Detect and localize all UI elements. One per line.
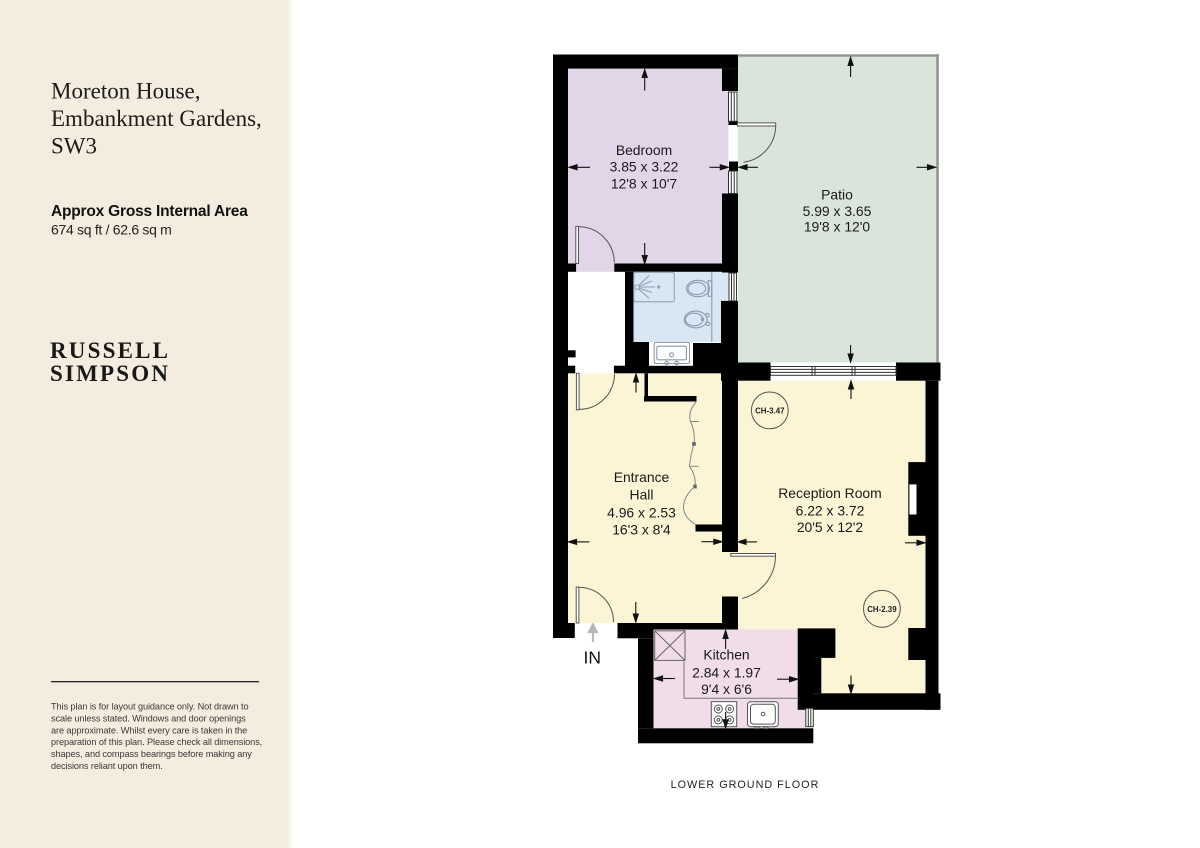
svg-text:decisions reliant upon them.: decisions reliant upon them. xyxy=(51,761,163,771)
svg-text:CH-3.47: CH-3.47 xyxy=(755,406,785,415)
svg-text:scale unless stated. Windows a: scale unless stated. Windows and door op… xyxy=(51,713,246,723)
svg-text:Patio: Patio xyxy=(821,187,853,203)
svg-text:2.84 x 1.97: 2.84 x 1.97 xyxy=(692,664,761,680)
svg-text:This plan is for layout guidan: This plan is for layout guidance only. N… xyxy=(51,702,248,712)
svg-text:SIMPSON: SIMPSON xyxy=(50,361,170,386)
svg-text:674 sq ft / 62.6 sq m: 674 sq ft / 62.6 sq m xyxy=(51,222,172,238)
svg-text:Embankment Gardens,: Embankment Gardens, xyxy=(51,106,262,131)
svg-text:LOWER GROUND FLOOR: LOWER GROUND FLOOR xyxy=(671,779,820,791)
svg-text:Moreton House,: Moreton House, xyxy=(51,79,200,104)
svg-text:20'5 x 12'2: 20'5 x 12'2 xyxy=(797,519,864,535)
svg-text:Approx Gross Internal Area: Approx Gross Internal Area xyxy=(51,203,248,220)
svg-text:16'3 x 8'4: 16'3 x 8'4 xyxy=(612,522,671,538)
svg-text:IN: IN xyxy=(584,648,602,668)
svg-text:9'4 x 6'6: 9'4 x 6'6 xyxy=(701,681,752,697)
svg-text:5.99 x 3.65: 5.99 x 3.65 xyxy=(803,203,872,219)
svg-text:shapes, and compass bearings b: shapes, and compass bearings before maki… xyxy=(51,749,252,759)
svg-text:12'8 x 10'7: 12'8 x 10'7 xyxy=(611,176,678,192)
svg-text:are approximate. Whilst every: are approximate. Whilst every care is ta… xyxy=(51,725,247,735)
svg-text:SW3: SW3 xyxy=(51,134,97,159)
svg-text:Bedroom: Bedroom xyxy=(616,142,672,158)
svg-text:3.85 x 3.22: 3.85 x 3.22 xyxy=(610,159,679,175)
svg-text:6.22 x 3.72: 6.22 x 3.72 xyxy=(796,502,865,518)
svg-text:Entrance: Entrance xyxy=(614,469,670,485)
svg-text:Hall: Hall xyxy=(630,487,654,503)
svg-text:4.96 x 2.53: 4.96 x 2.53 xyxy=(607,505,676,521)
svg-text:CH-2.39: CH-2.39 xyxy=(867,605,897,614)
svg-text:19'8 x 12'0: 19'8 x 12'0 xyxy=(804,219,871,235)
svg-text:Kitchen: Kitchen xyxy=(703,647,749,663)
svg-text:preparation of this plan. Plea: preparation of this plan. Please check a… xyxy=(51,737,262,747)
svg-text:RUSSELL: RUSSELL xyxy=(50,338,170,363)
svg-text:Reception Room: Reception Room xyxy=(778,485,881,501)
